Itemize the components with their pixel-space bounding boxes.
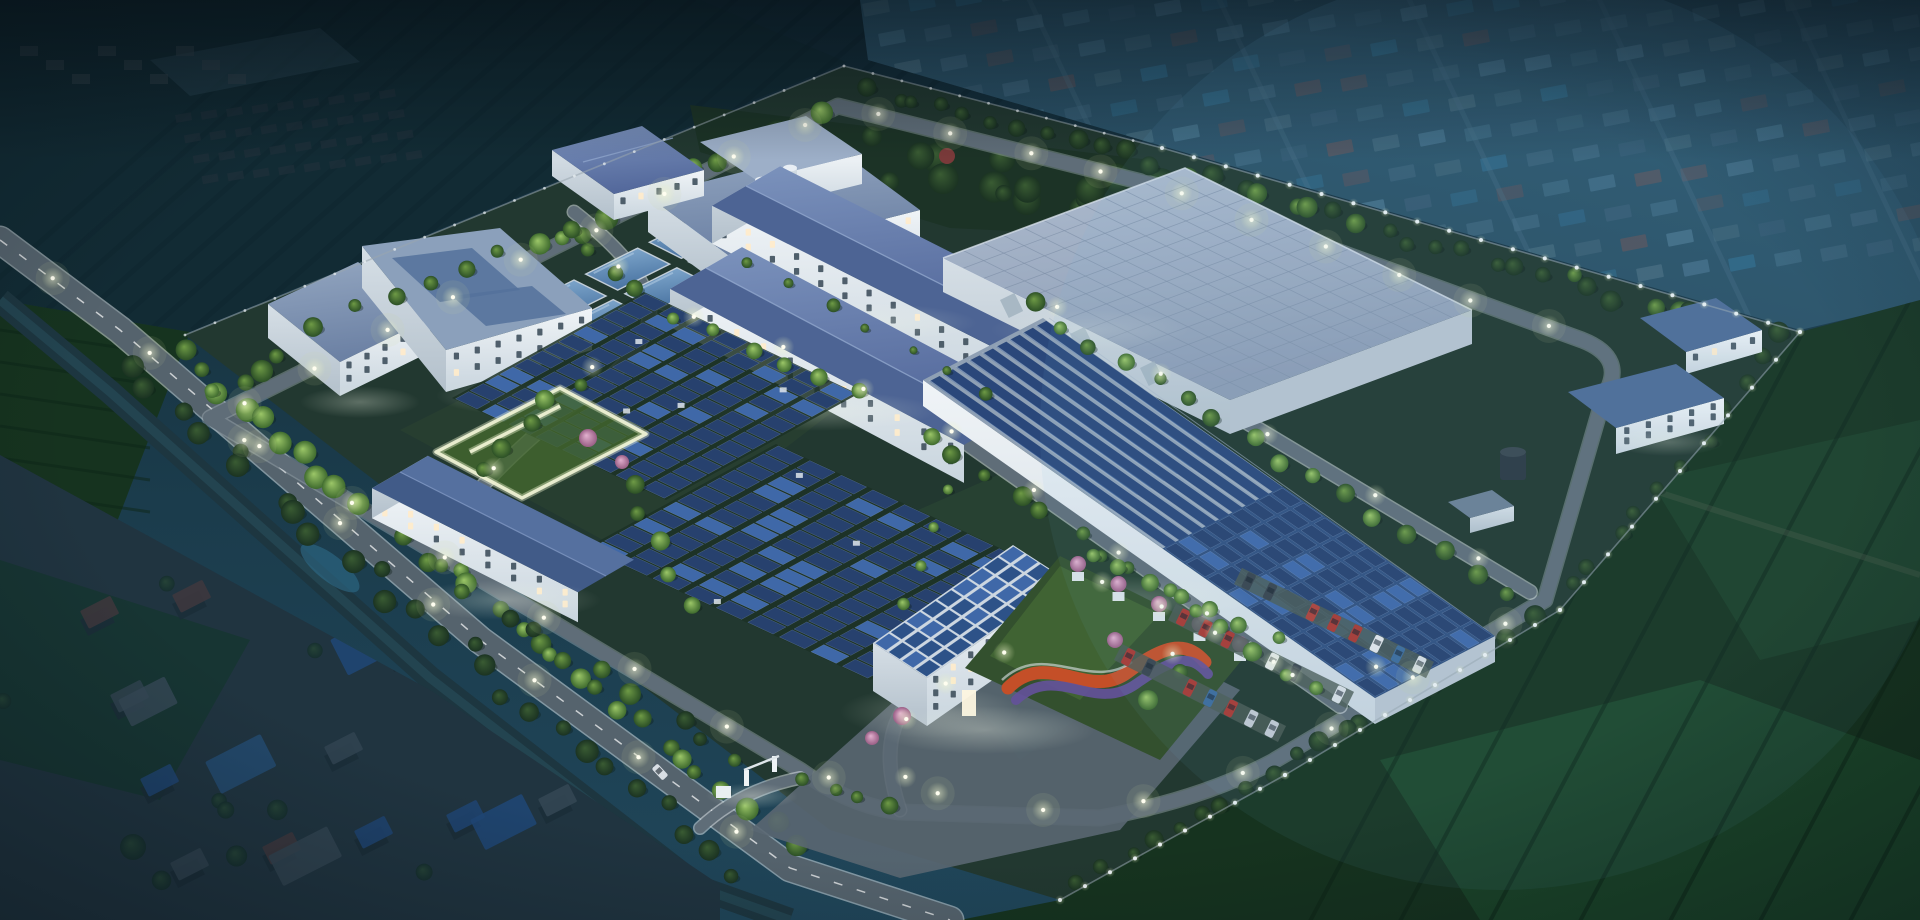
night-aerial-rendering bbox=[0, 0, 1920, 920]
atmosphere-overlays bbox=[0, 0, 1920, 920]
scene-canvas bbox=[0, 0, 1920, 920]
